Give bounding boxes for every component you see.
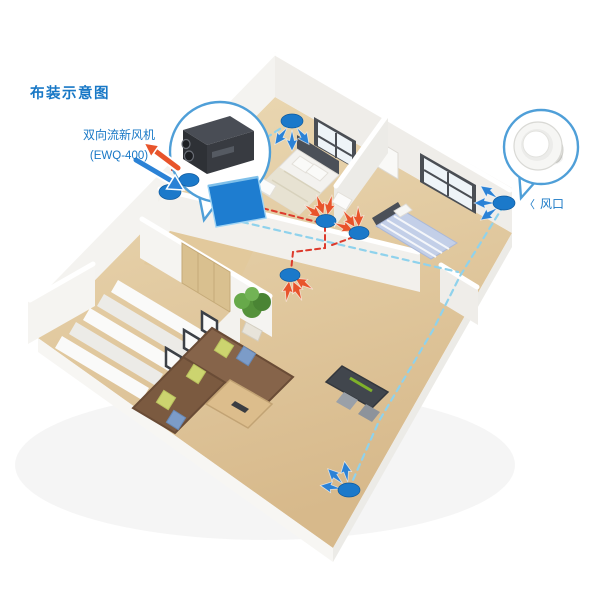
device-model: (EWQ-400)	[56, 146, 182, 167]
ventilation-schematic: 布装示意图 双向流新风机 (EWQ-400) 〈风口	[0, 0, 600, 600]
vent-callout	[504, 110, 578, 198]
diffuser-label: 〈风口	[524, 195, 564, 212]
unit-port-1	[179, 174, 199, 187]
chevron-left-icon: 〈	[524, 199, 535, 211]
device-name: 双向流新风机	[56, 124, 182, 146]
round-air-diffuser-icon	[514, 122, 563, 170]
diffuser-label-text: 风口	[540, 197, 564, 211]
device-label: 双向流新风机 (EWQ-400)	[56, 124, 182, 167]
page-title: 布装示意图	[30, 82, 110, 103]
